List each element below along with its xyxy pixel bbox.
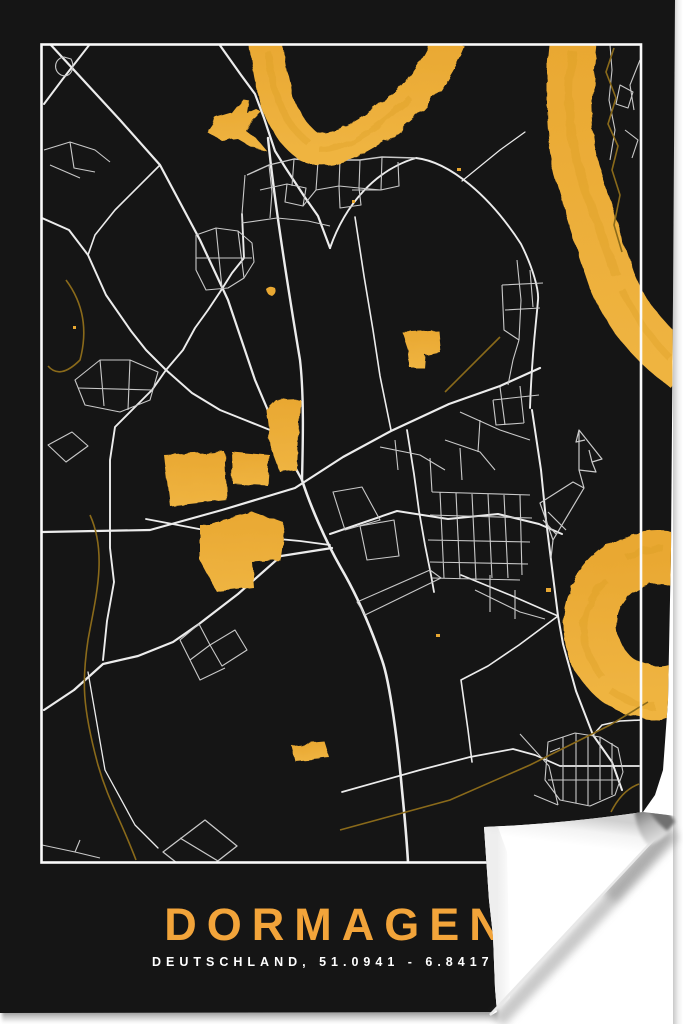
svg-text:DEUTSCHLAND, 51.0941 - 6.8417: DEUTSCHLAND, 51.0941 - 6.8417 (152, 955, 494, 969)
svg-text:DORMAGEN: DORMAGEN (164, 899, 512, 950)
